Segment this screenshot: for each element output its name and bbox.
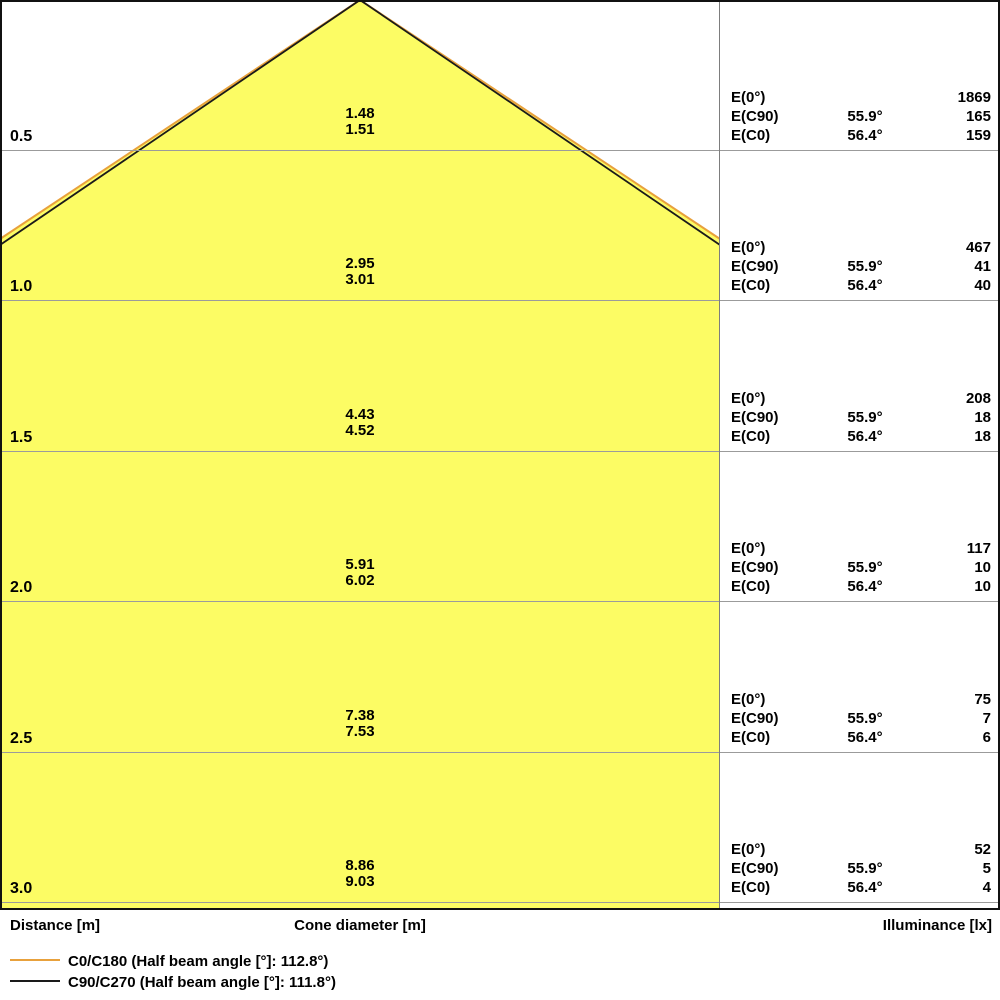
cone-diameter-values: 4.43 4.52	[0, 407, 720, 439]
e0-label: E(0°)	[720, 690, 815, 709]
ec0-value: 40	[915, 276, 1000, 295]
e0-value: 467	[915, 238, 1000, 257]
illuminance-axis-label: Illuminance [lx]	[883, 917, 992, 935]
ec90-label: E(C90)	[720, 408, 815, 427]
ec0-label: E(C0)	[720, 728, 815, 747]
ec0-angle: 56.4°	[815, 878, 915, 897]
illuminance-block: E(0°)467 E(C90)55.9°41 E(C0)56.4°40	[720, 238, 1000, 295]
ec0-angle: 56.4°	[815, 577, 915, 596]
e0-label: E(0°)	[720, 238, 815, 257]
ec90-value: 10	[915, 558, 1000, 577]
legend-label-c90-c270: C90/C270 (Half beam angle [°]: 111.8°)	[68, 974, 336, 991]
cone-diameter-values: 2.95 3.01	[0, 256, 720, 288]
illuminance-block: E(0°)75 E(C90)55.9°7 E(C0)56.4°6	[720, 690, 1000, 747]
ec90-angle: 55.9°	[815, 408, 915, 427]
cone-diameter-c0: 7.53	[0, 724, 720, 740]
ec0-angle: 56.4°	[815, 728, 915, 747]
ec0-angle: 56.4°	[815, 276, 915, 295]
ec0-label: E(C0)	[720, 276, 815, 295]
e0-angle	[815, 690, 915, 709]
legend-label-c0-c180: C0/C180 (Half beam angle [°]: 112.8°)	[68, 953, 328, 970]
e0-angle	[815, 539, 915, 558]
ec90-label: E(C90)	[720, 257, 815, 276]
cone-diameter-axis-label: Cone diameter [m]	[0, 917, 720, 935]
ec0-value: 18	[915, 427, 1000, 446]
illuminance-block: E(0°)52 E(C90)55.9°5 E(C0)56.4°4	[720, 840, 1000, 897]
cone-diameter-c90: 4.43	[0, 407, 720, 423]
ec0-label: E(C0)	[720, 427, 815, 446]
e0-value: 117	[915, 539, 1000, 558]
ec0-label: E(C0)	[720, 577, 815, 596]
e0-angle	[815, 840, 915, 859]
cone-diameter-c90: 5.91	[0, 557, 720, 573]
cone-diameter-c0: 6.02	[0, 573, 720, 589]
ec90-value: 165	[915, 107, 1000, 126]
cone-diameter-values: 5.91 6.02	[0, 557, 720, 589]
ec0-label: E(C0)	[720, 878, 815, 897]
ec90-angle: 55.9°	[815, 709, 915, 728]
cone-diameter-c90: 7.38	[0, 708, 720, 724]
legend-swatch-c90-c270	[10, 980, 60, 982]
e0-value: 52	[915, 840, 1000, 859]
e0-angle	[815, 389, 915, 408]
ec90-label: E(C90)	[720, 709, 815, 728]
cone-diameter-c0: 4.52	[0, 423, 720, 439]
ec90-value: 41	[915, 257, 1000, 276]
ec90-angle: 55.9°	[815, 558, 915, 577]
illuminance-block: E(0°)117 E(C90)55.9°10 E(C0)56.4°10	[720, 539, 1000, 596]
e0-label: E(0°)	[720, 539, 815, 558]
illuminance-block: E(0°)1869 E(C90)55.9°165 E(C0)56.4°159	[720, 88, 1000, 145]
ec90-label: E(C90)	[720, 558, 815, 577]
cone-diameter-c0: 9.03	[0, 874, 720, 890]
e0-value: 208	[915, 389, 1000, 408]
e0-label: E(0°)	[720, 389, 815, 408]
cone-diameter-values: 7.38 7.53	[0, 708, 720, 740]
ec0-value: 6	[915, 728, 1000, 747]
ec0-angle: 56.4°	[815, 126, 915, 145]
ec90-angle: 55.9°	[815, 107, 915, 126]
ec90-value: 18	[915, 408, 1000, 427]
ec0-value: 10	[915, 577, 1000, 596]
ec0-angle: 56.4°	[815, 427, 915, 446]
light-cone-diagram: 0.5 1.48 1.51 E(0°)1869 E(C90)55.9°165 E…	[0, 0, 1000, 1000]
cone-diameter-values: 1.48 1.51	[0, 106, 720, 138]
cone-diameter-c90: 1.48	[0, 106, 720, 122]
e0-value: 75	[915, 690, 1000, 709]
e0-angle	[815, 238, 915, 257]
ec90-angle: 55.9°	[815, 257, 915, 276]
illuminance-block: E(0°)208 E(C90)55.9°18 E(C0)56.4°18	[720, 389, 1000, 446]
cone-diameter-c90: 8.86	[0, 858, 720, 874]
ec90-angle: 55.9°	[815, 859, 915, 878]
ec90-label: E(C90)	[720, 859, 815, 878]
ec0-value: 4	[915, 878, 1000, 897]
cone-diameter-values: 8.86 9.03	[0, 858, 720, 890]
cone-diameter-c90: 2.95	[0, 256, 720, 272]
ec90-value: 5	[915, 859, 1000, 878]
ec0-label: E(C0)	[720, 126, 815, 145]
cone-diameter-c0: 3.01	[0, 272, 720, 288]
ec90-label: E(C90)	[720, 107, 815, 126]
e0-angle	[815, 88, 915, 107]
ec90-value: 7	[915, 709, 1000, 728]
e0-label: E(0°)	[720, 88, 815, 107]
legend-swatch-c0-c180	[10, 959, 60, 961]
e0-label: E(0°)	[720, 840, 815, 859]
ec0-value: 159	[915, 126, 1000, 145]
e0-value: 1869	[915, 88, 1000, 107]
cone-diameter-c0: 1.51	[0, 122, 720, 138]
